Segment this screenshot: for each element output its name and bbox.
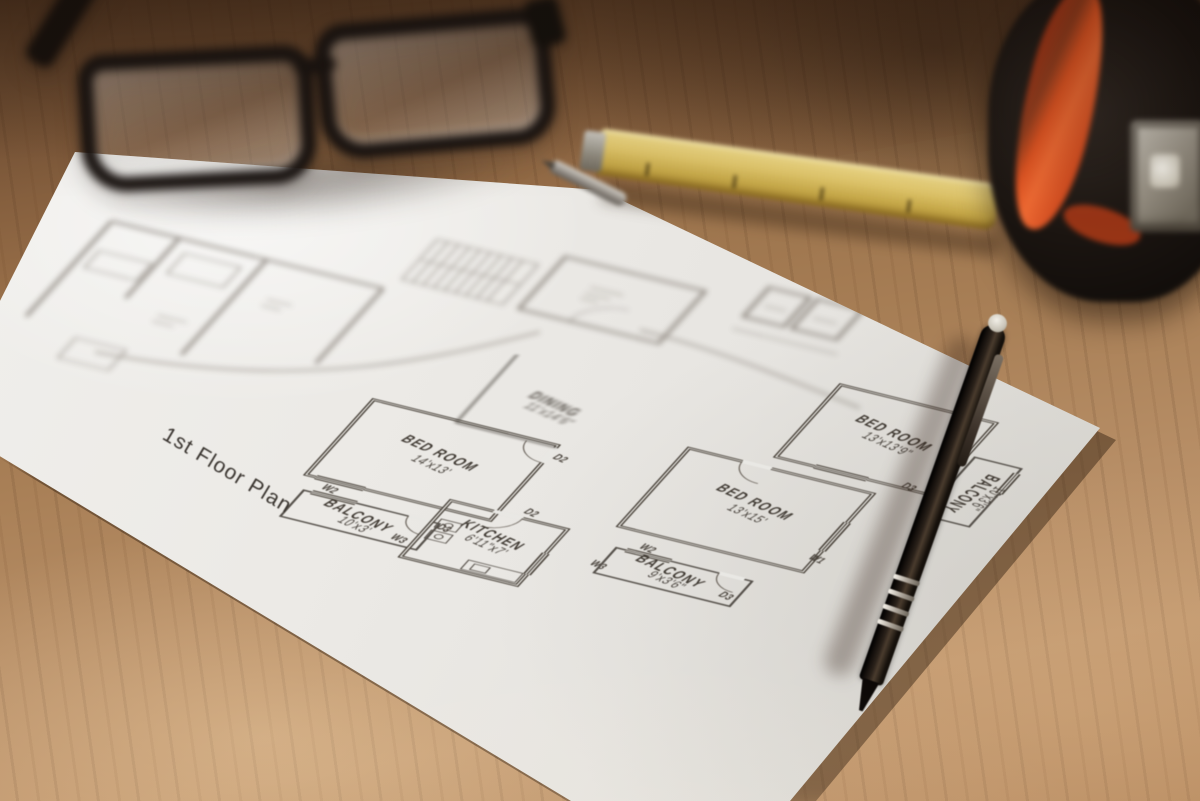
tape-measure-belt-clip xyxy=(1130,120,1200,232)
tape-clip-glint xyxy=(1150,154,1180,188)
eyeglasses xyxy=(50,0,565,215)
tape-measure xyxy=(988,0,1200,302)
plan-caption-group: 1st Floor Plan xyxy=(159,423,296,518)
room-dining: DINING 11'x14'6" xyxy=(456,355,618,448)
room-bedroom-middle: BED ROOM 13'x15' W1 xyxy=(619,448,885,574)
glasses-lens-left xyxy=(77,44,319,194)
ruler-hinge xyxy=(579,130,606,173)
marker-w3-kitchen-right: W3 xyxy=(586,559,611,572)
plan-caption: 1st Floor Plan xyxy=(159,423,296,518)
glasses-lens-right xyxy=(313,6,559,162)
photo-scene: BED ROOM 14'x13' D2 BALCONY 10'x3' W2 D3 xyxy=(0,0,1200,801)
room-balcony-middle: BALCONY 9'x3'6" W2 D3 xyxy=(594,537,762,606)
